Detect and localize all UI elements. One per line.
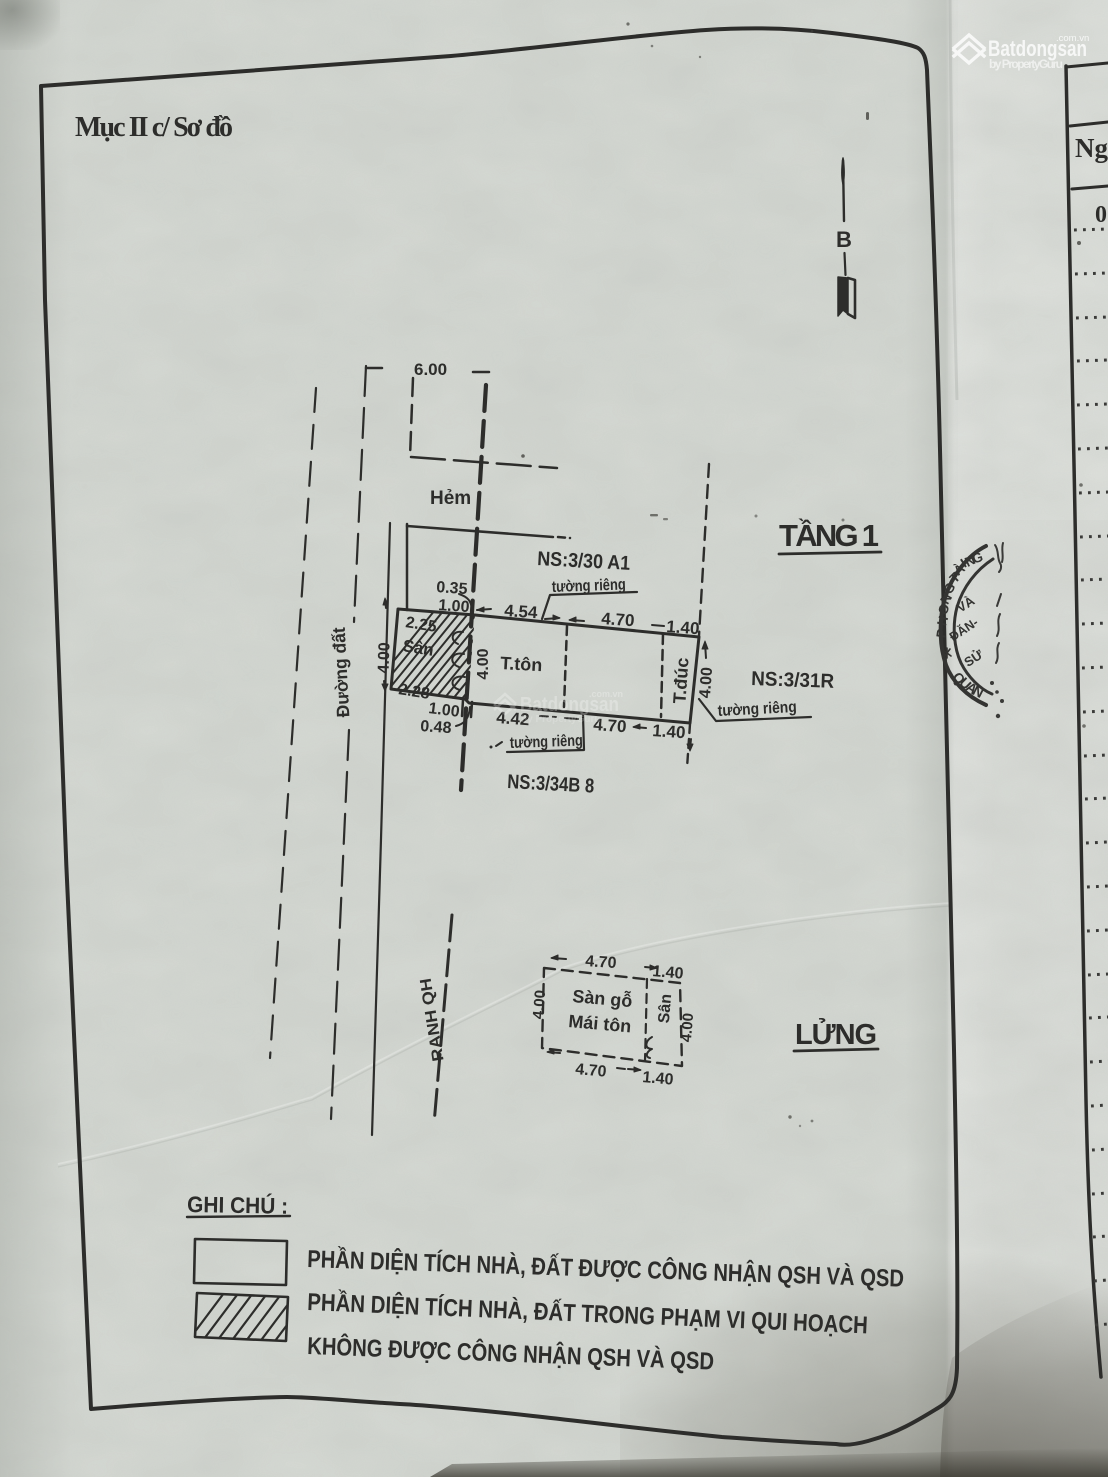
svg-text:by PropertyGuru: by PropertyGuru xyxy=(521,714,600,725)
svg-text:TẦNG 1: TẦNG 1 xyxy=(779,518,881,553)
svg-text:Mục II c/ Sơ đồ: Mục II c/ Sơ đồ xyxy=(75,112,233,143)
svg-text:1.40: 1.40 xyxy=(652,721,686,742)
svg-text:1.40: 1.40 xyxy=(642,1069,675,1089)
svg-text:tường riêng: tường riêng xyxy=(552,576,627,596)
svg-text:1.40: 1.40 xyxy=(666,617,700,638)
svg-text:tường riêng: tường riêng xyxy=(510,732,584,752)
svg-text:1.00: 1.00 xyxy=(438,597,470,616)
svg-text:4.54: 4.54 xyxy=(504,601,539,622)
svg-text:NS:3/34B 8: NS:3/34B 8 xyxy=(507,771,595,798)
svg-text:.com.vn: .com.vn xyxy=(1056,33,1089,44)
svg-text:1.40: 1.40 xyxy=(652,963,685,983)
svg-text:6.00: 6.00 xyxy=(414,360,447,379)
svg-text:.com.vn: .com.vn xyxy=(589,689,623,699)
svg-text:0.35: 0.35 xyxy=(436,579,468,598)
svg-text:4.70: 4.70 xyxy=(585,953,617,972)
svg-text:4.70: 4.70 xyxy=(601,609,635,630)
svg-text:by PropertyGuru: by PropertyGuru xyxy=(989,57,1063,71)
svg-text:NS:3/31R: NS:3/31R xyxy=(751,668,835,693)
svg-text:Sân: Sân xyxy=(656,993,675,1024)
svg-text:0: 0 xyxy=(1095,202,1107,228)
svg-text:GHI CHÚ :: GHI CHÚ : xyxy=(187,1192,288,1219)
svg-text:0.48: 0.48 xyxy=(420,718,452,737)
svg-text:B: B xyxy=(836,227,852,252)
svg-text:4.00: 4.00 xyxy=(530,989,549,1020)
svg-text:4.00: 4.00 xyxy=(697,666,716,698)
svg-text:4.00: 4.00 xyxy=(678,1012,697,1043)
svg-text:Hẻm: Hẻm xyxy=(430,488,471,509)
svg-text:4.00: 4.00 xyxy=(375,642,393,674)
svg-text:LỬNG: LỬNG xyxy=(795,1017,878,1051)
svg-text:T.tôn: T.tôn xyxy=(500,653,543,675)
svg-text:Ngà: Ngà xyxy=(1075,133,1108,163)
svg-text:4.70: 4.70 xyxy=(575,1061,608,1081)
svg-text:4.00: 4.00 xyxy=(475,648,492,679)
svg-text:T.đúc: T.đúc xyxy=(669,657,692,704)
